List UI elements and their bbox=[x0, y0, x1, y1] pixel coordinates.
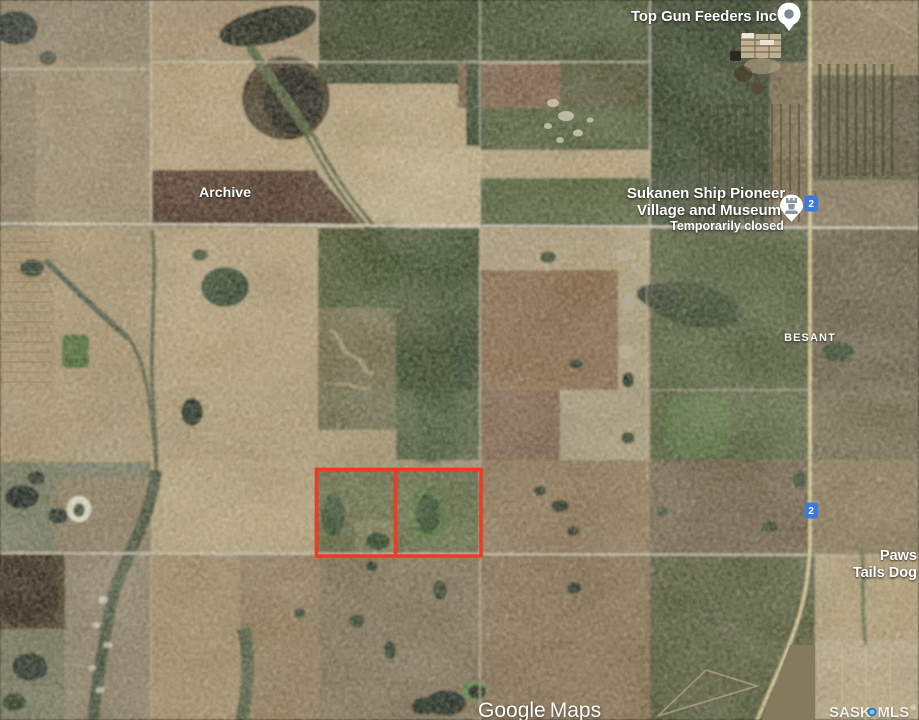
svg-text:Tails Dog: Tails Dog bbox=[853, 565, 917, 581]
svg-text:SASK: SASK bbox=[829, 705, 871, 720]
svg-text:BESANT: BESANT bbox=[784, 332, 836, 344]
svg-text:Paws: Paws bbox=[880, 548, 917, 564]
svg-text:2: 2 bbox=[808, 506, 814, 517]
svg-text:Top Gun Feeders Inc: Top Gun Feeders Inc bbox=[631, 9, 777, 25]
svg-text:MLS: MLS bbox=[878, 705, 910, 720]
svg-text:Village and Museum: Village and Museum bbox=[637, 202, 781, 219]
svg-text:2: 2 bbox=[808, 199, 814, 210]
svg-text:Temporarily closed: Temporarily closed bbox=[670, 219, 784, 233]
svg-text:®: ® bbox=[911, 703, 917, 712]
svg-text:Archive: Archive bbox=[199, 185, 251, 201]
svg-text:GoogleMaps: GoogleMaps bbox=[478, 699, 601, 720]
svg-text:Sukanen Ship Pioneer: Sukanen Ship Pioneer bbox=[627, 185, 786, 202]
